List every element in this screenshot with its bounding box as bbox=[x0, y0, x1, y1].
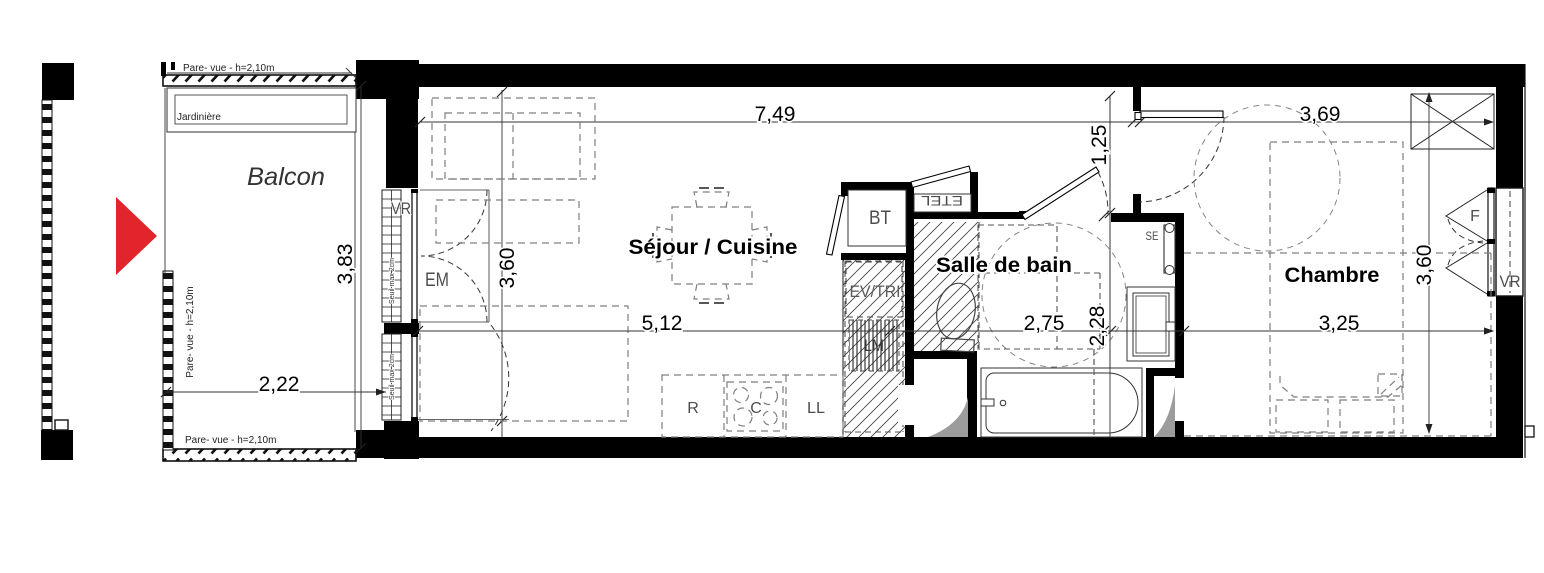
svg-text:VR: VR bbox=[391, 199, 411, 218]
svg-text:Chambre: Chambre bbox=[1285, 264, 1380, 287]
svg-text:3,83: 3,83 bbox=[334, 244, 357, 285]
svg-text:1,25: 1,25 bbox=[1088, 125, 1111, 166]
svg-text:SE: SE bbox=[1146, 229, 1159, 243]
svg-text:5,12: 5,12 bbox=[642, 312, 683, 335]
svg-text:LL: LL bbox=[807, 400, 825, 417]
svg-text:BT: BT bbox=[869, 208, 891, 229]
svg-text:2,75: 2,75 bbox=[1024, 312, 1065, 335]
svg-text:ETEL: ETEL bbox=[921, 193, 963, 209]
svg-text:Seuil max 2cm: Seuil max 2cm bbox=[389, 258, 396, 304]
svg-text:Séjour / Cuisine: Séjour / Cuisine bbox=[629, 236, 798, 259]
svg-text:Pare- vue - h=2,10m: Pare- vue - h=2,10m bbox=[185, 435, 276, 446]
svg-text:C: C bbox=[750, 400, 762, 417]
svg-text:3,25: 3,25 bbox=[1319, 312, 1360, 335]
svg-text:Pare- vue - h=2,10m: Pare- vue - h=2,10m bbox=[185, 286, 196, 377]
svg-text:2,28: 2,28 bbox=[1086, 306, 1109, 347]
svg-text:3,60: 3,60 bbox=[496, 248, 519, 289]
svg-text:2,22: 2,22 bbox=[259, 373, 300, 396]
svg-text:3,69: 3,69 bbox=[1300, 103, 1341, 126]
svg-text:EV/TRI: EV/TRI bbox=[850, 282, 901, 301]
svg-text:R: R bbox=[687, 400, 699, 417]
svg-text:3,60: 3,60 bbox=[1413, 245, 1436, 286]
svg-text:F: F bbox=[1470, 208, 1480, 225]
svg-text:7,49: 7,49 bbox=[755, 103, 796, 126]
svg-text:EM: EM bbox=[425, 270, 449, 291]
svg-text:Jardinière: Jardinière bbox=[177, 112, 221, 123]
svg-text:LM: LM bbox=[864, 336, 884, 355]
svg-text:Balcon: Balcon bbox=[247, 163, 325, 191]
svg-text:VR: VR bbox=[1500, 272, 1521, 291]
svg-text:Seuil max 2cm: Seuil max 2cm bbox=[389, 354, 396, 400]
svg-text:Pare- vue - h=2,10m: Pare- vue - h=2,10m bbox=[183, 63, 274, 74]
svg-text:Salle de bain: Salle de bain bbox=[936, 254, 1072, 277]
